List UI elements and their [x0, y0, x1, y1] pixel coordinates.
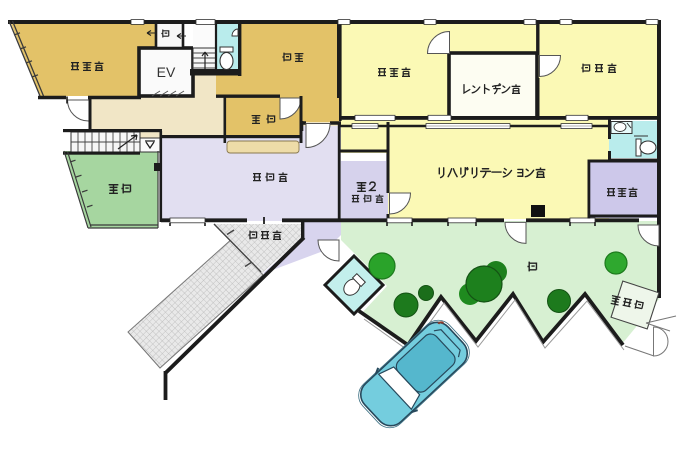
svg-text:EV: EV	[157, 64, 176, 80]
